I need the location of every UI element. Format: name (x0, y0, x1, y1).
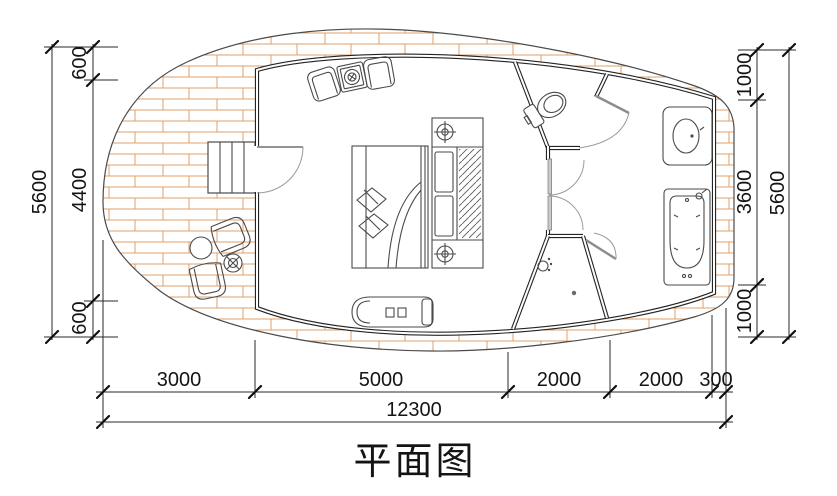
dim-right-3600: 3600 (734, 170, 756, 215)
floor-plan-canvas: 600 4400 600 5600 1000 3600 1000 5600 30… (0, 0, 837, 496)
dim-right-1000-bottom: 1000 (734, 289, 756, 334)
dim-left-600-bottom: 600 (69, 301, 91, 334)
plan-title: 平面图 (353, 441, 476, 483)
dim-right-1000-top: 1000 (734, 53, 756, 98)
bathtub (664, 189, 710, 285)
vanity-sink (663, 107, 712, 165)
floor-drain-icon (572, 291, 576, 295)
bed (352, 146, 428, 268)
chaise-lounge (352, 297, 433, 327)
small-table-icon (224, 254, 242, 272)
dim-right-5600: 5600 (767, 171, 789, 216)
dim-bottom-2000-a: 2000 (537, 369, 582, 391)
dim-left-5600: 5600 (29, 170, 51, 215)
nightstand-wardrobe-unit (432, 118, 483, 268)
dim-left-600-top: 600 (69, 46, 91, 79)
hanging-clothes-hatch (459, 149, 481, 238)
dim-bottom-300: 300 (699, 369, 732, 391)
dimension-right: 1000 3600 1000 5600 (734, 44, 796, 343)
dim-bottom-3000: 3000 (157, 369, 202, 391)
entry-door-opening (250, 146, 264, 192)
dim-bottom-5000: 5000 (359, 369, 404, 391)
dim-bottom-2000-b: 2000 (639, 369, 684, 391)
dim-bottom-12300: 12300 (386, 399, 442, 421)
dim-left-4400: 4400 (69, 168, 91, 213)
round-table-icon (190, 237, 212, 259)
entry-steps (208, 142, 255, 193)
